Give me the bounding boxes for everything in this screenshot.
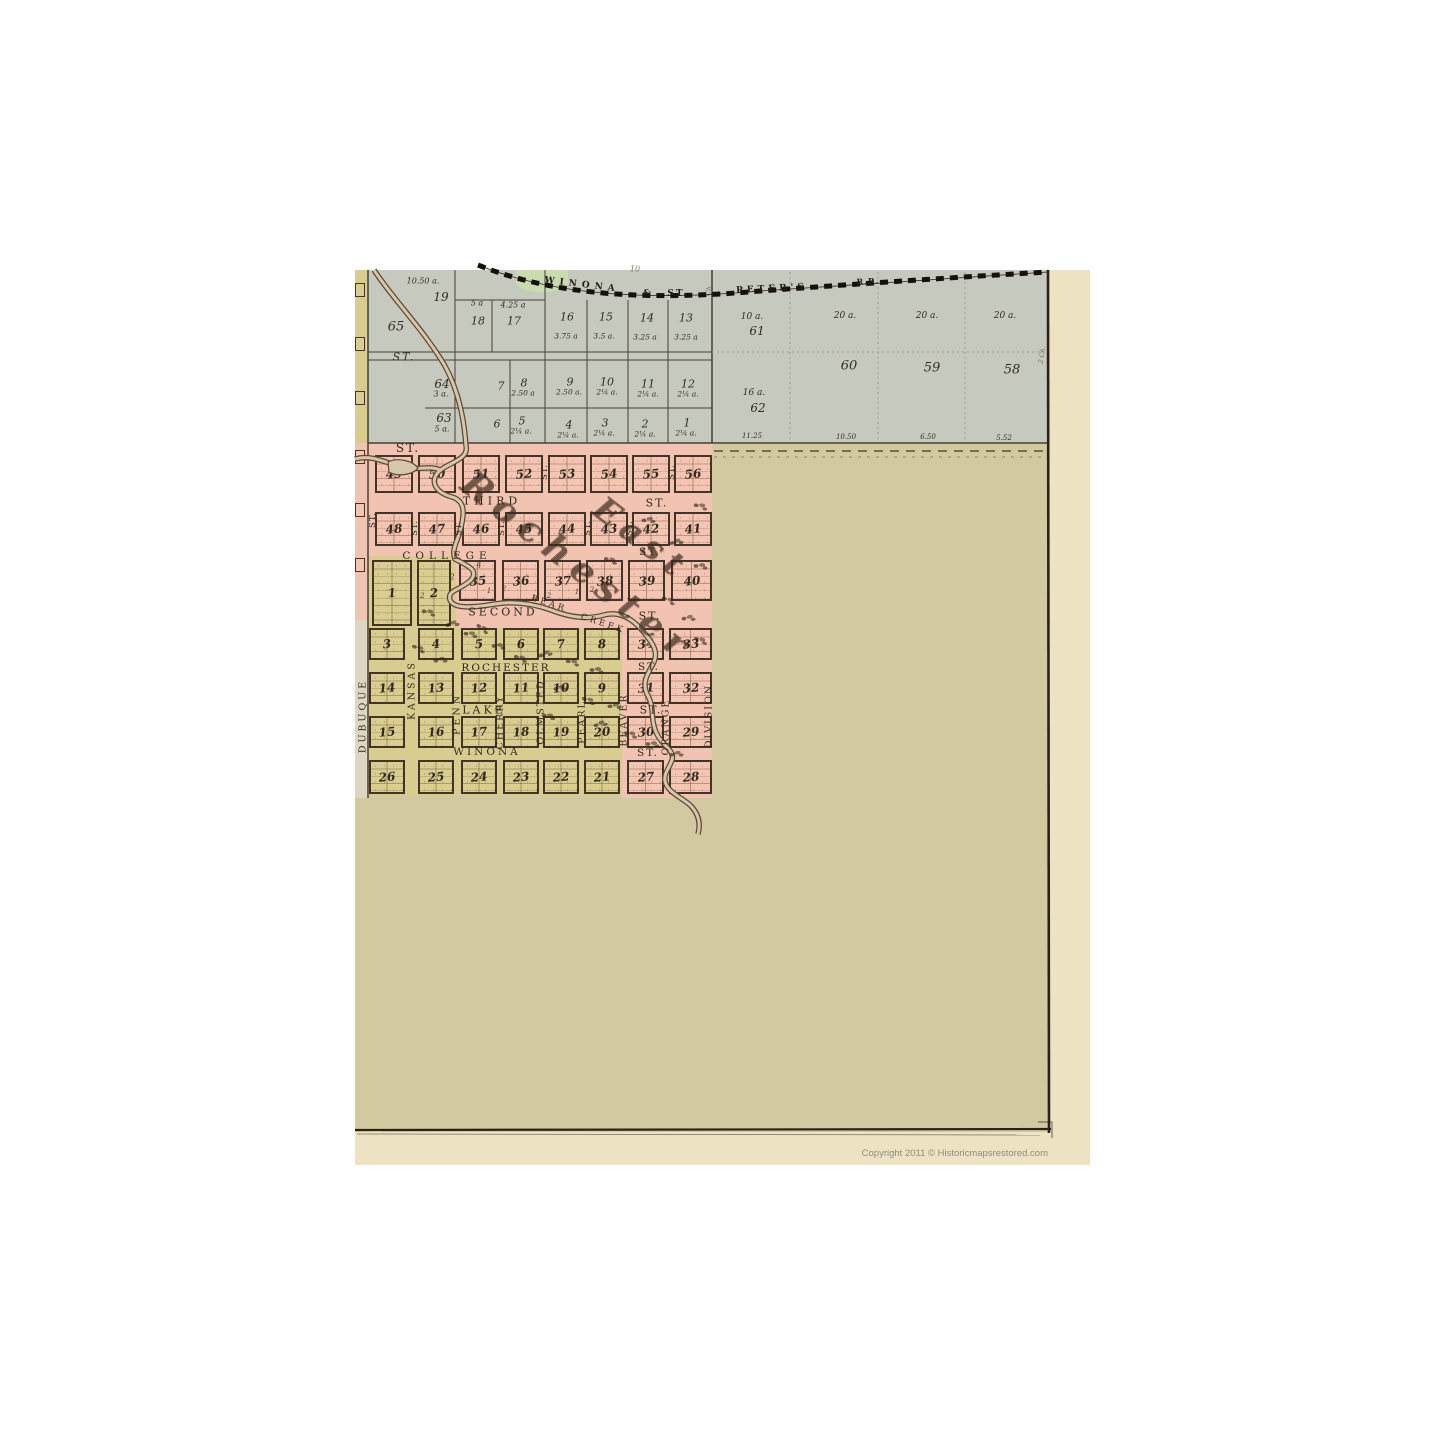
street-label-vertical: PENN bbox=[452, 693, 463, 735]
block-15: 15 bbox=[369, 716, 405, 748]
block-number: 31 bbox=[637, 680, 655, 695]
railroad-label: R.R. bbox=[856, 275, 879, 286]
lot-label: 13 bbox=[679, 312, 693, 325]
block-3: 3 bbox=[369, 628, 405, 660]
lot-label: 4.25 a bbox=[500, 301, 525, 310]
tree-flourish bbox=[692, 562, 708, 571]
street-label-vertical: BEAVER bbox=[619, 693, 630, 746]
street-label-vertical: DUBUQUE bbox=[358, 679, 369, 753]
lot-label: 5 a. bbox=[435, 425, 450, 434]
block-stub bbox=[355, 391, 365, 405]
block-number: 50 bbox=[428, 466, 446, 481]
lot-label: 65 bbox=[388, 320, 405, 335]
map-note: 10 bbox=[630, 265, 640, 274]
block-stub bbox=[355, 503, 365, 517]
lot-label: 14 bbox=[640, 312, 654, 325]
block-12: 12 bbox=[461, 672, 497, 704]
block-56: 56 bbox=[674, 455, 712, 493]
block-number: 46 bbox=[472, 521, 490, 536]
street-label: ST. bbox=[637, 747, 659, 759]
block-22: 22 bbox=[543, 760, 579, 794]
lot-label: 2.50 a bbox=[511, 389, 535, 398]
block-number: 11 bbox=[512, 680, 530, 695]
street-label-vertical: ORANGE bbox=[661, 699, 672, 756]
lot-label: 3.5 a. bbox=[593, 332, 614, 341]
lot-label: 62 bbox=[750, 401, 765, 415]
block-number: 40 bbox=[683, 573, 701, 588]
lot-label: 2¼ a. bbox=[637, 390, 658, 399]
block-stub bbox=[355, 450, 365, 464]
lot-label: 58 bbox=[1004, 363, 1021, 378]
lot-label: 3 a. bbox=[434, 390, 449, 399]
lot-label: 60 bbox=[841, 359, 858, 374]
tree-flourish bbox=[462, 629, 479, 639]
lot-label: 10.50 a. bbox=[407, 277, 440, 286]
block-number: 25 bbox=[427, 769, 445, 784]
block-14: 14 bbox=[369, 672, 405, 704]
block-number: 9 bbox=[597, 681, 607, 696]
block-stub bbox=[355, 337, 365, 351]
block-number: 3 bbox=[382, 637, 392, 652]
block-25: 25 bbox=[418, 760, 454, 794]
tree-flourish bbox=[588, 666, 604, 675]
block-number: 26 bbox=[378, 769, 396, 784]
block-number: 19 bbox=[552, 724, 570, 739]
block-number: 6 bbox=[516, 637, 526, 652]
street-label-vertical: DIVISION bbox=[704, 684, 715, 748]
block-11: 11 bbox=[503, 672, 539, 704]
lot-label: 61 bbox=[749, 324, 764, 338]
lot-label: 2¼ a. bbox=[634, 430, 655, 439]
block-31: 31 bbox=[627, 672, 664, 704]
lot-label: ST. bbox=[393, 351, 416, 364]
lot-label: 17 bbox=[507, 315, 521, 328]
block-number: 47 bbox=[428, 521, 446, 536]
lot-label: 2¼ a. bbox=[510, 427, 531, 436]
street-label-vertical: KANSAS bbox=[407, 660, 418, 720]
block-number: 49 bbox=[385, 466, 403, 481]
railroad-label: & bbox=[643, 289, 651, 299]
street-label-vertical: CHERRY bbox=[495, 695, 506, 750]
block-number: 53 bbox=[558, 466, 576, 481]
tree-flourish bbox=[490, 642, 506, 651]
block-number: 48 bbox=[385, 521, 403, 536]
lot-label: 16 bbox=[560, 311, 574, 324]
page: { "sheet": { "copyright": "Copyright 201… bbox=[0, 0, 1445, 1445]
lot-label: 3.25 a bbox=[633, 333, 657, 342]
street-label-vertical: ST. bbox=[368, 512, 378, 528]
map-edge-strip-pink bbox=[355, 443, 368, 620]
lot-label: 5.52 bbox=[996, 434, 1012, 442]
block-53: 53 bbox=[548, 455, 586, 493]
lot-label: 7 bbox=[498, 380, 505, 393]
lot-label: 2.50 a. bbox=[556, 388, 582, 397]
street-label-vertical: ST. bbox=[410, 520, 420, 536]
block-number: 56 bbox=[684, 466, 702, 481]
block-16: 16 bbox=[418, 716, 454, 748]
tiny-lot-number: 2 bbox=[547, 592, 551, 600]
street-label: ST. bbox=[638, 661, 660, 673]
lot-label: 15 bbox=[599, 311, 613, 324]
block-stub bbox=[355, 283, 365, 297]
block-number: 13 bbox=[427, 680, 445, 695]
block-number: 27 bbox=[637, 769, 655, 784]
copyright-notice: Copyright 2011 © Historicmapsrestored.co… bbox=[830, 1148, 1048, 1159]
block-50: 50 bbox=[418, 455, 456, 493]
street-label-vertical: ST. bbox=[667, 464, 677, 480]
street-label: SECOND bbox=[468, 606, 537, 619]
street-label: WINONA bbox=[453, 746, 521, 758]
lot-label: 19 bbox=[433, 290, 448, 304]
block-number: 8 bbox=[597, 637, 607, 652]
street-label: ST. bbox=[640, 704, 663, 717]
block-1: 1 bbox=[372, 560, 412, 626]
lot-label: 59 bbox=[924, 361, 941, 376]
block-number: 2 bbox=[429, 586, 439, 601]
block-number: 28 bbox=[682, 769, 700, 784]
block-number: 17 bbox=[470, 724, 488, 739]
lot-label: 18 bbox=[471, 315, 485, 328]
block-number: 16 bbox=[427, 724, 445, 739]
block-number: 18 bbox=[512, 724, 530, 739]
block-23: 23 bbox=[503, 760, 539, 794]
lot-label: 20 a. bbox=[834, 311, 857, 321]
tiny-lot-number: 2 bbox=[449, 573, 454, 582]
street-label-vertical: PEARL bbox=[577, 700, 588, 744]
block-number: 55 bbox=[642, 466, 660, 481]
block-21: 21 bbox=[584, 760, 620, 794]
block-number: 32 bbox=[682, 680, 700, 695]
lot-label: 20 a. bbox=[916, 311, 939, 321]
block-number: 15 bbox=[378, 724, 396, 739]
street-label-vertical: OLMSTED bbox=[536, 679, 547, 744]
block-55: 55 bbox=[632, 455, 670, 493]
tiny-lot-number: 12 bbox=[416, 592, 425, 600]
street-label: ROCHESTER bbox=[461, 662, 550, 674]
block-number: 36 bbox=[512, 573, 530, 588]
railroad-label: ST. bbox=[667, 289, 688, 299]
lot-label: 6.50 bbox=[920, 433, 936, 441]
block-number: 30 bbox=[637, 724, 655, 739]
lot-label: 2¼ a. bbox=[593, 429, 614, 438]
block-number: 29 bbox=[682, 724, 700, 739]
lot-label: 2¼ a. bbox=[675, 429, 696, 438]
lot-label: 3.75 a bbox=[554, 332, 578, 341]
street-label-vertical: ST. bbox=[540, 464, 550, 480]
block-27: 27 bbox=[627, 760, 664, 794]
block-number: 21 bbox=[593, 769, 611, 784]
lot-label: 10.50 bbox=[836, 433, 856, 441]
tiny-lot-number: 2 bbox=[502, 585, 506, 593]
block-13: 13 bbox=[418, 672, 454, 704]
lot-label: 2¼ a. bbox=[557, 431, 578, 440]
block-47: 47 bbox=[418, 512, 456, 546]
lot-label: 16 a. bbox=[743, 388, 766, 398]
block-49: 49 bbox=[375, 455, 413, 493]
street-label-vertical: ST. bbox=[454, 520, 464, 536]
block-number: 14 bbox=[378, 680, 396, 695]
block-number: 1 bbox=[387, 586, 397, 601]
lot-label: 3.25 a bbox=[674, 333, 698, 342]
block-number: 23 bbox=[512, 769, 530, 784]
lot-label: 6 bbox=[494, 418, 501, 431]
tiny-lot-number: 4 bbox=[476, 561, 481, 570]
block-number: 54 bbox=[600, 466, 618, 481]
block-number: 22 bbox=[552, 769, 570, 784]
block-17: 17 bbox=[461, 716, 497, 748]
block-48: 48 bbox=[375, 512, 413, 546]
block-number: 12 bbox=[470, 680, 488, 695]
block-number: 39 bbox=[638, 573, 656, 588]
tiny-lot-number: 1 bbox=[487, 587, 491, 595]
block-stub bbox=[355, 558, 365, 572]
lot-label: 10 a. bbox=[741, 312, 764, 322]
block-26: 26 bbox=[369, 760, 405, 794]
lot-label: 63 bbox=[436, 411, 451, 425]
block-number: 35 bbox=[469, 573, 487, 588]
tiny-lot-number: 1 bbox=[532, 594, 536, 602]
lot-label: 2¼ a. bbox=[677, 390, 698, 399]
street-label: ST. bbox=[646, 497, 669, 510]
block-18: 18 bbox=[503, 716, 539, 748]
block-number: 7 bbox=[556, 637, 566, 652]
street-label: ST. bbox=[396, 441, 420, 455]
block-number: 52 bbox=[515, 466, 533, 481]
block-28: 28 bbox=[669, 760, 712, 794]
lot-label: 2¼ a. bbox=[596, 388, 617, 397]
lot-label: 20 a. bbox=[994, 311, 1017, 321]
lot-label: 11.25 bbox=[742, 432, 762, 440]
block-number: 4 bbox=[431, 637, 441, 652]
block-24: 24 bbox=[461, 760, 497, 794]
block-number: 24 bbox=[470, 769, 488, 784]
block-number: 41 bbox=[684, 521, 702, 536]
lot-label: 5 a bbox=[471, 299, 483, 308]
